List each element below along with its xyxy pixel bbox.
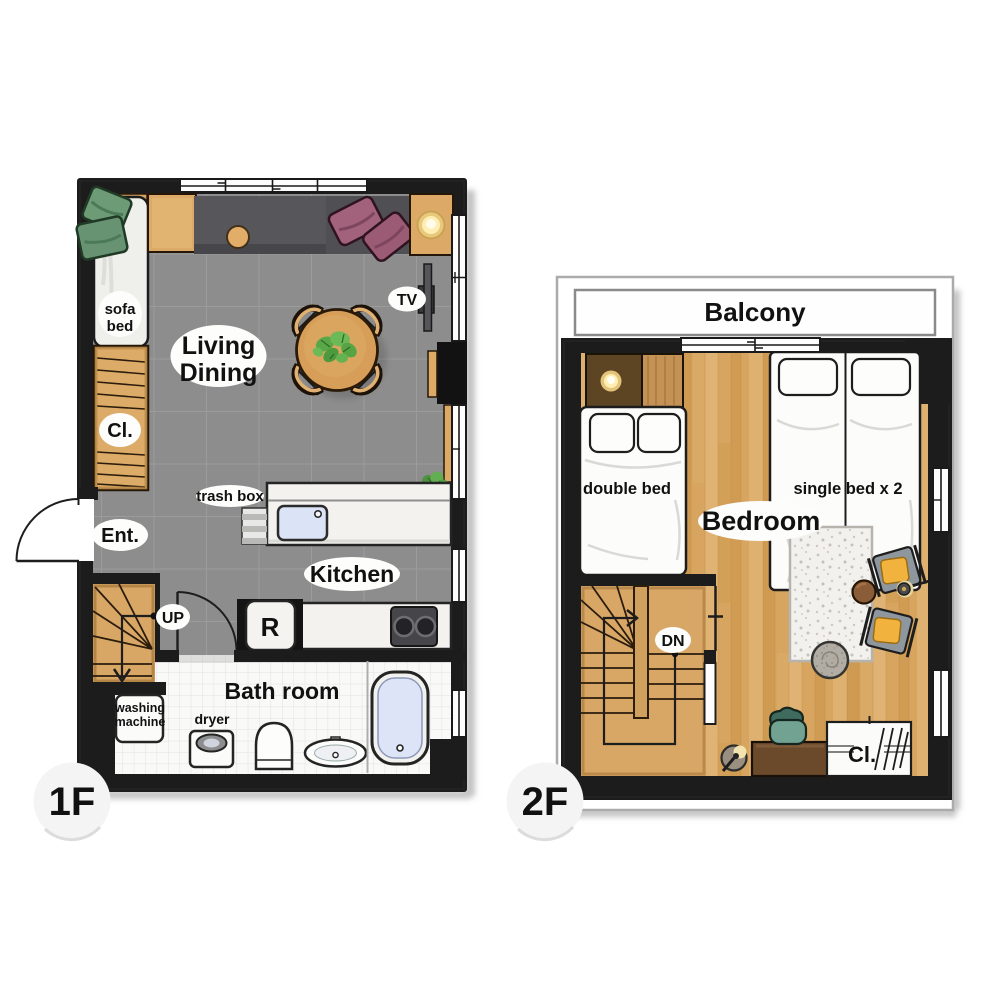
svg-text:TV: TV <box>397 292 418 309</box>
svg-text:washing: washing <box>114 701 165 715</box>
svg-text:Cl.: Cl. <box>107 420 133 442</box>
svg-text:Kitchen: Kitchen <box>310 561 394 587</box>
svg-text:Bedroom: Bedroom <box>702 506 821 536</box>
svg-text:Cl.: Cl. <box>848 742 876 767</box>
svg-text:Bath room: Bath room <box>225 678 340 704</box>
svg-text:sofa: sofa <box>105 301 137 318</box>
svg-text:UP: UP <box>162 610 185 627</box>
svg-text:Ent.: Ent. <box>101 525 139 547</box>
svg-text:dryer: dryer <box>194 711 230 727</box>
svg-text:trash box: trash box <box>196 488 264 505</box>
svg-text:2F: 2F <box>522 780 569 824</box>
svg-text:Balcony: Balcony <box>704 297 806 327</box>
svg-text:1F: 1F <box>49 780 96 824</box>
svg-text:Dining: Dining <box>180 359 258 387</box>
svg-text:Living: Living <box>182 332 256 360</box>
svg-text:R: R <box>261 612 280 642</box>
svg-text:DN: DN <box>661 633 684 650</box>
svg-text:machine: machine <box>115 715 166 729</box>
svg-text:double bed: double bed <box>583 480 671 498</box>
svg-text:bed: bed <box>107 318 134 335</box>
svg-text:single bed x 2: single bed x 2 <box>793 480 902 498</box>
